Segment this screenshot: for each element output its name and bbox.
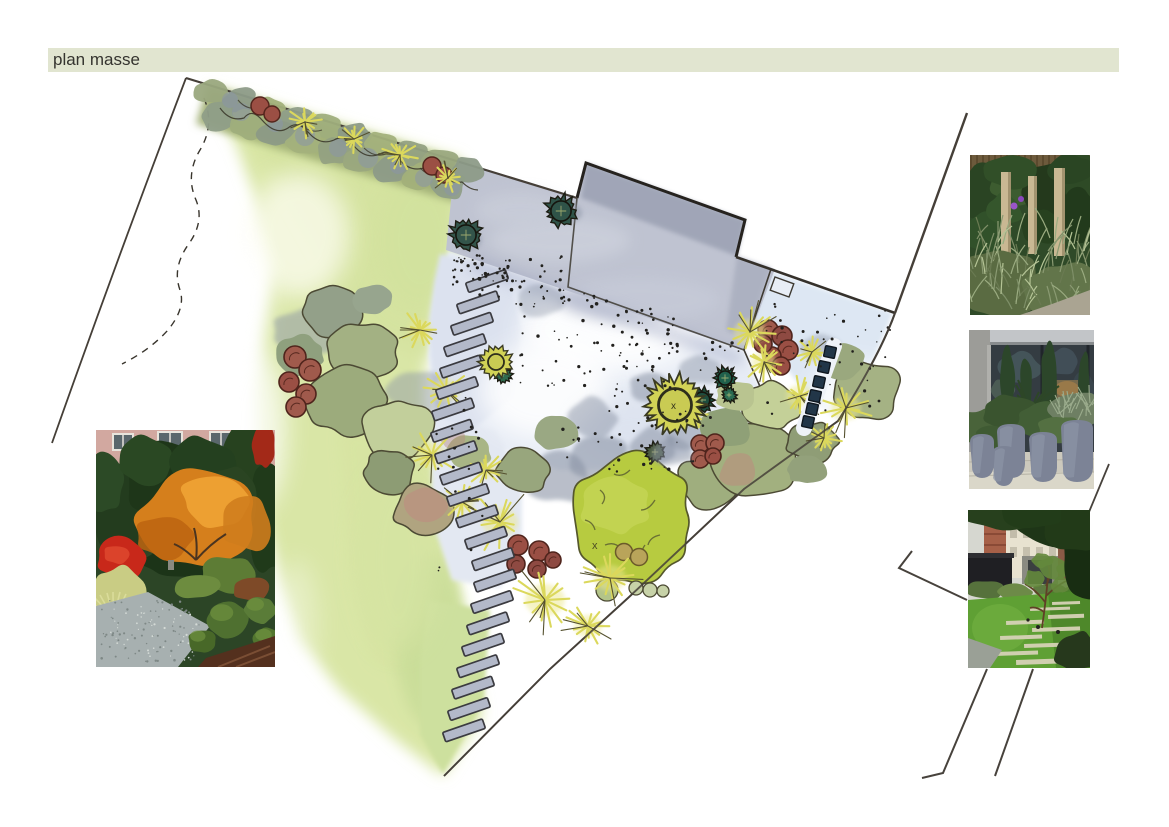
svg-text:x: x [592, 540, 598, 552]
svg-text:x: x [671, 401, 676, 412]
